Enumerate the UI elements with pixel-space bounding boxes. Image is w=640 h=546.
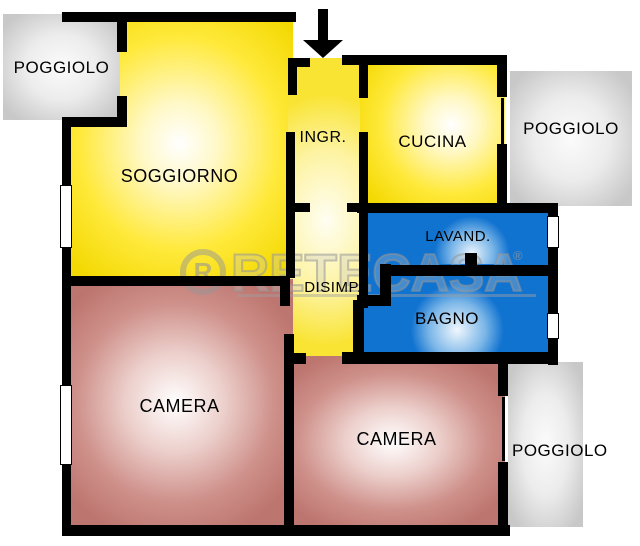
wall-bagno-bottom [342,352,558,364]
label-bagno: BAGNO [362,310,532,327]
wall-entry-top-stub [290,58,310,67]
wall-camera-right-outer-upper [498,352,508,396]
wall-soggiorno-camera-divider [62,276,290,286]
watermark-registered-icon: ® [513,248,523,263]
label-poggiolo-bottom-right: POGGIOLO [512,442,608,459]
wall-balcony-notch-upper [117,12,127,52]
wall-top-outer [62,12,296,22]
wall-balcony-notch-bottom [62,117,127,127]
label-cucina: CUCINA [360,133,505,150]
label-lavanderia: LAVAND. [362,229,554,244]
entrance-arrow-head-icon [303,40,343,58]
wall-bottom-outer [62,525,510,536]
label-poggiolo-top-left: POGGIOLO [3,59,120,76]
label-disimpegno: DISIMP. [288,280,378,295]
wall-camera-right-outer-lower [498,462,508,536]
window-soggiorno [60,185,72,248]
label-camera-left: CAMERA [66,397,293,415]
wall-camera-right-top-stub [353,343,362,354]
wall-cucina-lavanderia-divider [357,203,558,213]
wall-cucina-right-lower [497,144,507,213]
watermark-logo-circle: R [180,249,226,295]
label-soggiorno: SOGGIORNO [66,167,293,185]
label-poggiolo-right: POGGIOLO [510,120,632,137]
floor-plan: R RETECASA ® POGGIOLO SOGGIORNO INGR. CU… [0,0,640,546]
balcony-poggiolo-right-fill [510,71,632,206]
wall-corridor-right-upper [359,58,368,98]
label-camera-right: CAMERA [288,430,505,448]
label-ingresso: INGR. [288,130,358,146]
wall-divider-step-stub [465,253,477,267]
door-threshold-camera-balcony [502,397,505,461]
window-bagno [547,313,559,339]
wall-cucina-right-upper [497,55,507,97]
entrance-arrow-icon [318,9,328,41]
wall-corridor-left-door-stub [286,203,310,212]
